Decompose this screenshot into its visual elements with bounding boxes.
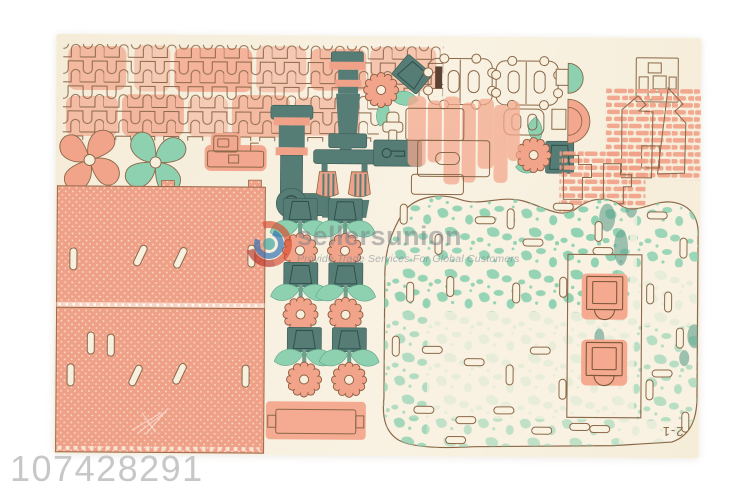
arch-door	[581, 273, 627, 319]
mottled-base-plate	[379, 170, 702, 454]
sheet-number-label: 2-1	[662, 424, 684, 439]
puzzle-sheet-graphics	[54, 34, 702, 458]
arch-door	[581, 339, 627, 385]
half-dome-pieces	[552, 63, 591, 143]
product-id: 107428291	[10, 448, 204, 490]
pinwheel-pink	[60, 130, 120, 190]
plank-piece	[266, 401, 366, 440]
lattice-roof-panels	[56, 179, 266, 453]
scribble-connectors	[405, 96, 520, 195]
puzzle-sheet: 2-1	[54, 34, 702, 458]
product-photo: 2-1 sellersunion Provide Trade Services …	[0, 0, 750, 500]
flower-pot-units	[269, 198, 380, 397]
